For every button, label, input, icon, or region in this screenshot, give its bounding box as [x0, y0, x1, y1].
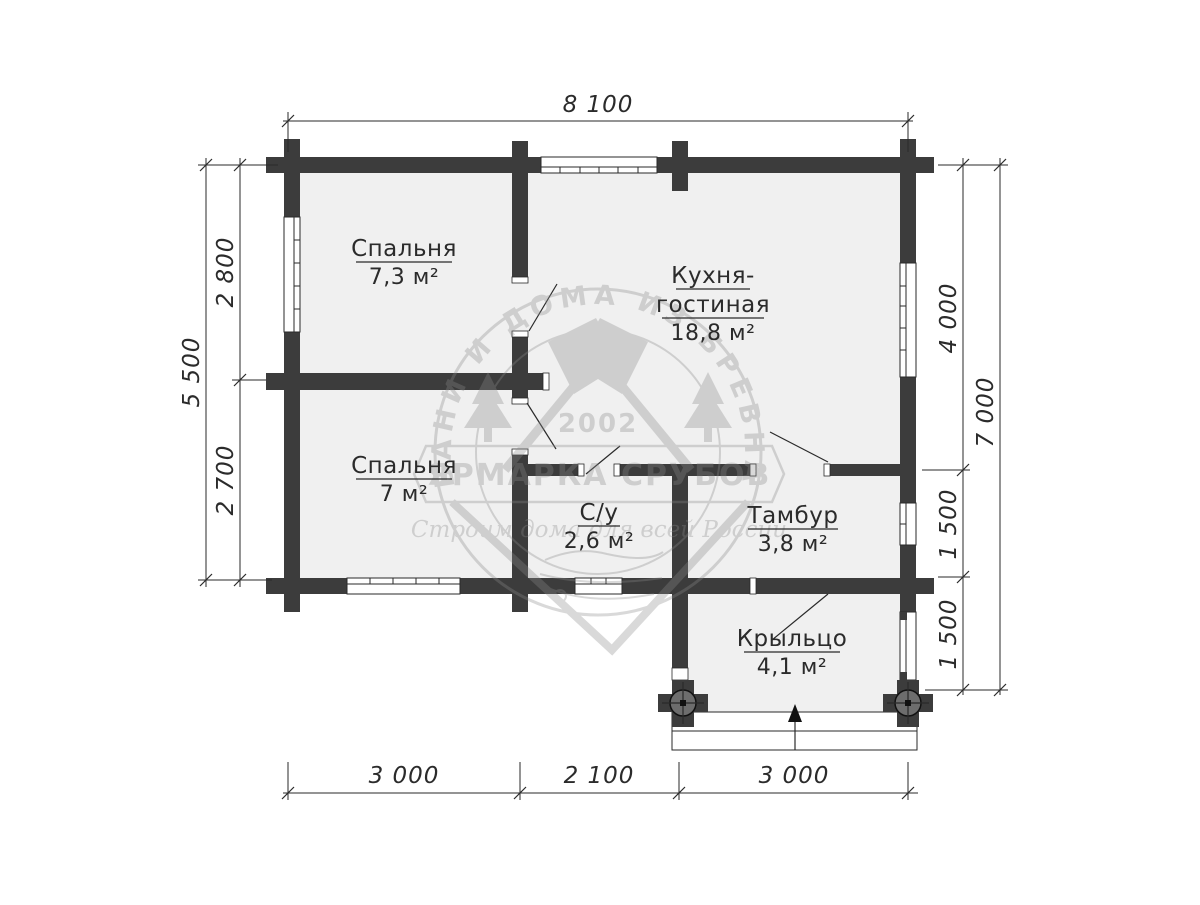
floor-plan-page: БАНИ И ДОМА ИЗ БРЕВНА 2002 ЯРМАРКА СРУБО…	[0, 0, 1200, 900]
svg-text:3,8 м²: 3,8 м²	[758, 532, 828, 557]
window-right-tambur	[900, 503, 916, 545]
svg-text:Спальня: Спальня	[351, 236, 457, 262]
log-stub	[916, 157, 934, 173]
dimension-right: 4 000 1 500 1 500 7 000	[922, 158, 1008, 696]
log-stub	[284, 139, 300, 157]
svg-text:Крыльцо: Крыльцо	[737, 626, 848, 652]
dim-value-bottom-left: 3 000	[369, 763, 440, 789]
svg-text:7,3 м²: 7,3 м²	[369, 265, 439, 290]
wall-cap	[750, 578, 756, 594]
svg-text:гостиная: гостиная	[656, 292, 770, 318]
dimension-bottom: 3 000 2 100 3 000	[282, 762, 918, 800]
log-stub	[266, 373, 284, 390]
log-stub	[672, 173, 688, 191]
dim-value-left-lower: 2 700	[213, 445, 239, 516]
dim-value-right-upper: 4 000	[936, 283, 962, 354]
svg-text:С/у: С/у	[580, 500, 619, 526]
window-top-kitchen	[541, 157, 657, 173]
window-bottom-bedroom2	[347, 578, 460, 594]
dimension-top: 8 100	[282, 92, 914, 152]
dim-value-right-mid: 1 500	[936, 489, 962, 560]
dim-value-right-total: 7 000	[973, 377, 999, 448]
window-left-bedroom1	[284, 217, 300, 332]
opening-porch-right	[900, 612, 916, 680]
wall-cap	[512, 277, 528, 283]
watermark-title: ЯРМАРКА СРУБОВ	[427, 458, 772, 493]
log-stub	[512, 141, 528, 157]
window-right-kitchen	[900, 263, 916, 377]
svg-text:Спальня: Спальня	[351, 453, 457, 479]
room-label-kitchen: Кухня- гостиная 18,8 м²	[656, 263, 770, 346]
svg-text:4,1 м²: 4,1 м²	[757, 655, 827, 680]
dim-value-left-total: 5 500	[179, 337, 205, 408]
dim-value-left-upper: 2 800	[213, 237, 239, 308]
wall-cap	[512, 398, 528, 404]
svg-text:Кухня-: Кухня-	[671, 263, 755, 289]
dim-value-bottom-right: 3 000	[759, 763, 830, 789]
wall-bedroom1-kitchen	[512, 157, 528, 277]
wall-cap	[824, 464, 830, 476]
porch-floor	[688, 594, 900, 712]
wall-tambur-top-right	[830, 464, 900, 476]
svg-text:18,8 м²: 18,8 м²	[671, 321, 756, 346]
svg-text:7 м²: 7 м²	[380, 482, 428, 507]
log-stub	[672, 141, 688, 157]
floor-plan-drawing: БАНИ И ДОМА ИЗ БРЕВНА 2002 ЯРМАРКА СРУБО…	[0, 0, 1200, 900]
log-stub	[916, 578, 934, 594]
wall-cap	[543, 373, 549, 390]
log-stub	[284, 594, 300, 612]
svg-text:2,6 м²: 2,6 м²	[564, 529, 634, 554]
dim-value-right-lower: 1 500	[936, 599, 962, 670]
watermark-year: 2002	[558, 409, 638, 439]
wall-cap	[672, 668, 688, 680]
svg-text:Тамбур: Тамбур	[747, 503, 839, 529]
dimension-left: 5 500 2 800 2 700	[179, 158, 278, 587]
dim-value-top: 8 100	[563, 92, 634, 118]
dim-value-bottom-center: 2 100	[564, 763, 635, 789]
